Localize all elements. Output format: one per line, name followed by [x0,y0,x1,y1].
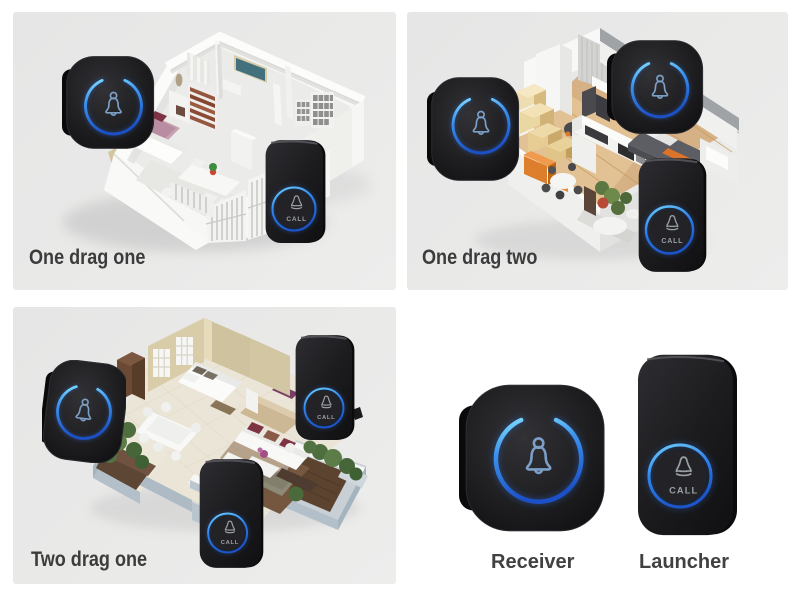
svg-text:CALL: CALL [669,485,698,495]
svg-text:CALL: CALL [286,216,307,223]
svg-text:CALL: CALL [221,540,239,546]
svg-text:CALL: CALL [317,415,335,421]
svg-text:CALL: CALL [661,238,683,245]
